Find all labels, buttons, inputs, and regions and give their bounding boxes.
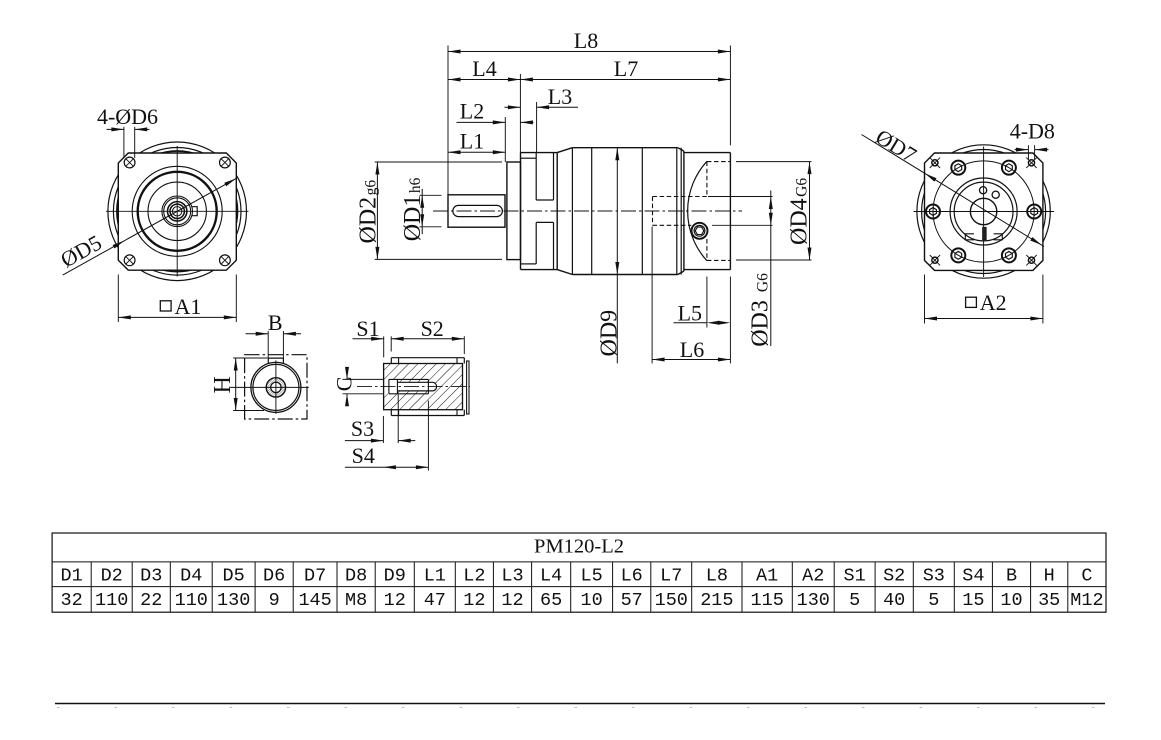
svg-text:15: 15 [962, 590, 984, 611]
svg-text:12: 12 [501, 590, 523, 611]
svg-text:L3: L3 [501, 565, 523, 586]
svg-text:S3: S3 [351, 416, 374, 441]
svg-text:S1: S1 [844, 565, 866, 586]
svg-text:S2: S2 [421, 316, 444, 341]
svg-text:150: 150 [655, 590, 688, 611]
svg-text:40: 40 [883, 590, 905, 611]
svg-text:L7: L7 [660, 565, 682, 586]
svg-text:D9: D9 [384, 565, 406, 586]
svg-text:57: 57 [621, 590, 643, 611]
svg-text:L4: L4 [540, 565, 562, 586]
svg-text:4-ØD6: 4-ØD6 [97, 104, 158, 129]
svg-text:L5: L5 [678, 301, 702, 326]
svg-text:M8: M8 [345, 590, 367, 611]
svg-text:L2: L2 [460, 99, 484, 124]
svg-text:B: B [268, 310, 283, 335]
svg-text:115: 115 [750, 590, 783, 611]
svg-text:PM120-L2: PM120-L2 [534, 536, 624, 558]
svg-text:L8: L8 [574, 28, 598, 53]
svg-text:65: 65 [540, 590, 562, 611]
svg-text:C: C [1081, 565, 1092, 586]
svg-text:10: 10 [1000, 590, 1022, 611]
svg-text:L4: L4 [472, 56, 496, 81]
svg-text:S1: S1 [356, 316, 379, 341]
svg-text:S4: S4 [352, 443, 375, 468]
svg-text:D6: D6 [263, 565, 285, 586]
svg-text:12: 12 [384, 590, 406, 611]
svg-text:D5: D5 [223, 565, 245, 586]
svg-text:S4: S4 [962, 565, 984, 586]
svg-text:D3: D3 [140, 565, 162, 586]
svg-text:ØD9: ØD9 [597, 310, 623, 357]
svg-text:L7: L7 [614, 56, 638, 81]
svg-text:D4: D4 [180, 565, 202, 586]
svg-text:S2: S2 [883, 565, 905, 586]
svg-text:S3: S3 [923, 565, 945, 586]
svg-text:10: 10 [581, 590, 603, 611]
svg-text:12: 12 [463, 590, 485, 611]
svg-text:5: 5 [849, 590, 860, 611]
svg-text:L1: L1 [424, 565, 446, 586]
svg-text:H: H [1044, 565, 1055, 586]
svg-text:L6: L6 [680, 337, 704, 362]
svg-text:A2: A2 [802, 565, 824, 586]
svg-text:47: 47 [424, 590, 446, 611]
svg-text:L2: L2 [463, 565, 485, 586]
svg-text:C: C [332, 377, 357, 392]
svg-text:H: H [210, 376, 236, 393]
svg-text:5: 5 [928, 590, 939, 611]
svg-text:32: 32 [61, 590, 83, 611]
svg-text:145: 145 [298, 590, 331, 611]
svg-text:215: 215 [700, 590, 733, 611]
svg-text:22: 22 [140, 590, 162, 611]
svg-text:M12: M12 [1070, 590, 1103, 611]
svg-text:130: 130 [217, 590, 250, 611]
svg-text:L6: L6 [621, 565, 643, 586]
svg-text:L8: L8 [706, 565, 728, 586]
svg-text:L5: L5 [581, 565, 603, 586]
svg-text:A2: A2 [980, 290, 1007, 315]
svg-text:4-D8: 4-D8 [1010, 119, 1055, 144]
svg-text:D7: D7 [304, 565, 326, 586]
svg-text:D8: D8 [345, 565, 367, 586]
svg-text:9: 9 [269, 590, 280, 611]
svg-text:L3: L3 [548, 84, 572, 109]
svg-text:A1: A1 [175, 294, 202, 319]
svg-text:110: 110 [175, 590, 208, 611]
svg-text:A1: A1 [756, 565, 778, 586]
svg-text:35: 35 [1038, 590, 1060, 611]
svg-text:110: 110 [95, 590, 128, 611]
svg-text:130: 130 [797, 590, 830, 611]
svg-text:L1: L1 [460, 129, 484, 154]
svg-text:B: B [1006, 565, 1017, 586]
svg-text:D2: D2 [101, 565, 123, 586]
svg-text:D1: D1 [61, 565, 83, 586]
